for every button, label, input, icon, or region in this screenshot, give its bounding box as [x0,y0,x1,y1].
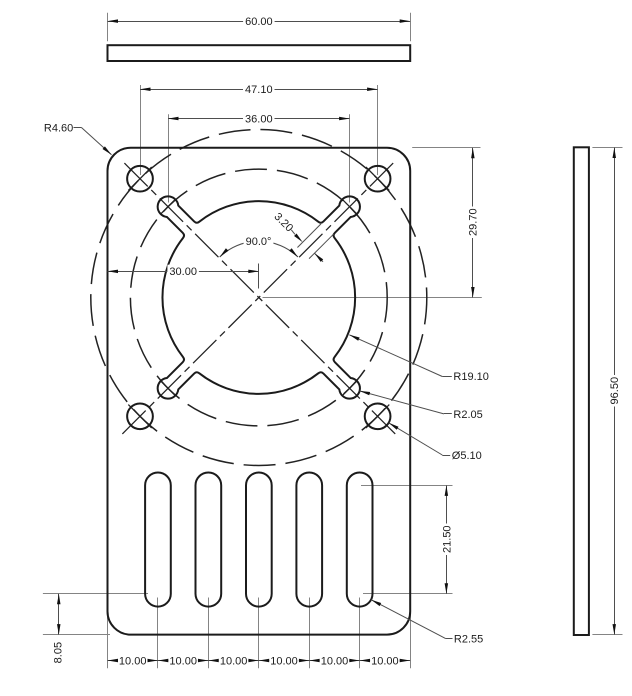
svg-text:R4.60: R4.60 [44,123,73,135]
svg-text:36.00: 36.00 [245,114,273,126]
svg-text:21.50: 21.50 [441,525,453,553]
svg-text:10.00: 10.00 [371,655,399,667]
svg-text:R2.55: R2.55 [454,633,483,645]
svg-text:8.05: 8.05 [52,642,64,663]
svg-text:30.00: 30.00 [169,266,197,278]
svg-text:10.00: 10.00 [220,655,248,667]
svg-text:10.00: 10.00 [321,655,349,667]
svg-text:96.50: 96.50 [609,377,621,405]
svg-text:R2.05: R2.05 [453,409,482,421]
svg-text:29.70: 29.70 [468,208,480,236]
svg-text:90.0°: 90.0° [246,236,272,248]
svg-text:R19.10: R19.10 [453,371,488,383]
svg-text:47.10: 47.10 [245,84,273,96]
svg-text:60.00: 60.00 [245,16,273,28]
svg-text:Ø5.10: Ø5.10 [452,450,482,462]
svg-text:10.00: 10.00 [169,655,197,667]
svg-text:10.00: 10.00 [119,655,147,667]
svg-text:10.00: 10.00 [270,655,298,667]
